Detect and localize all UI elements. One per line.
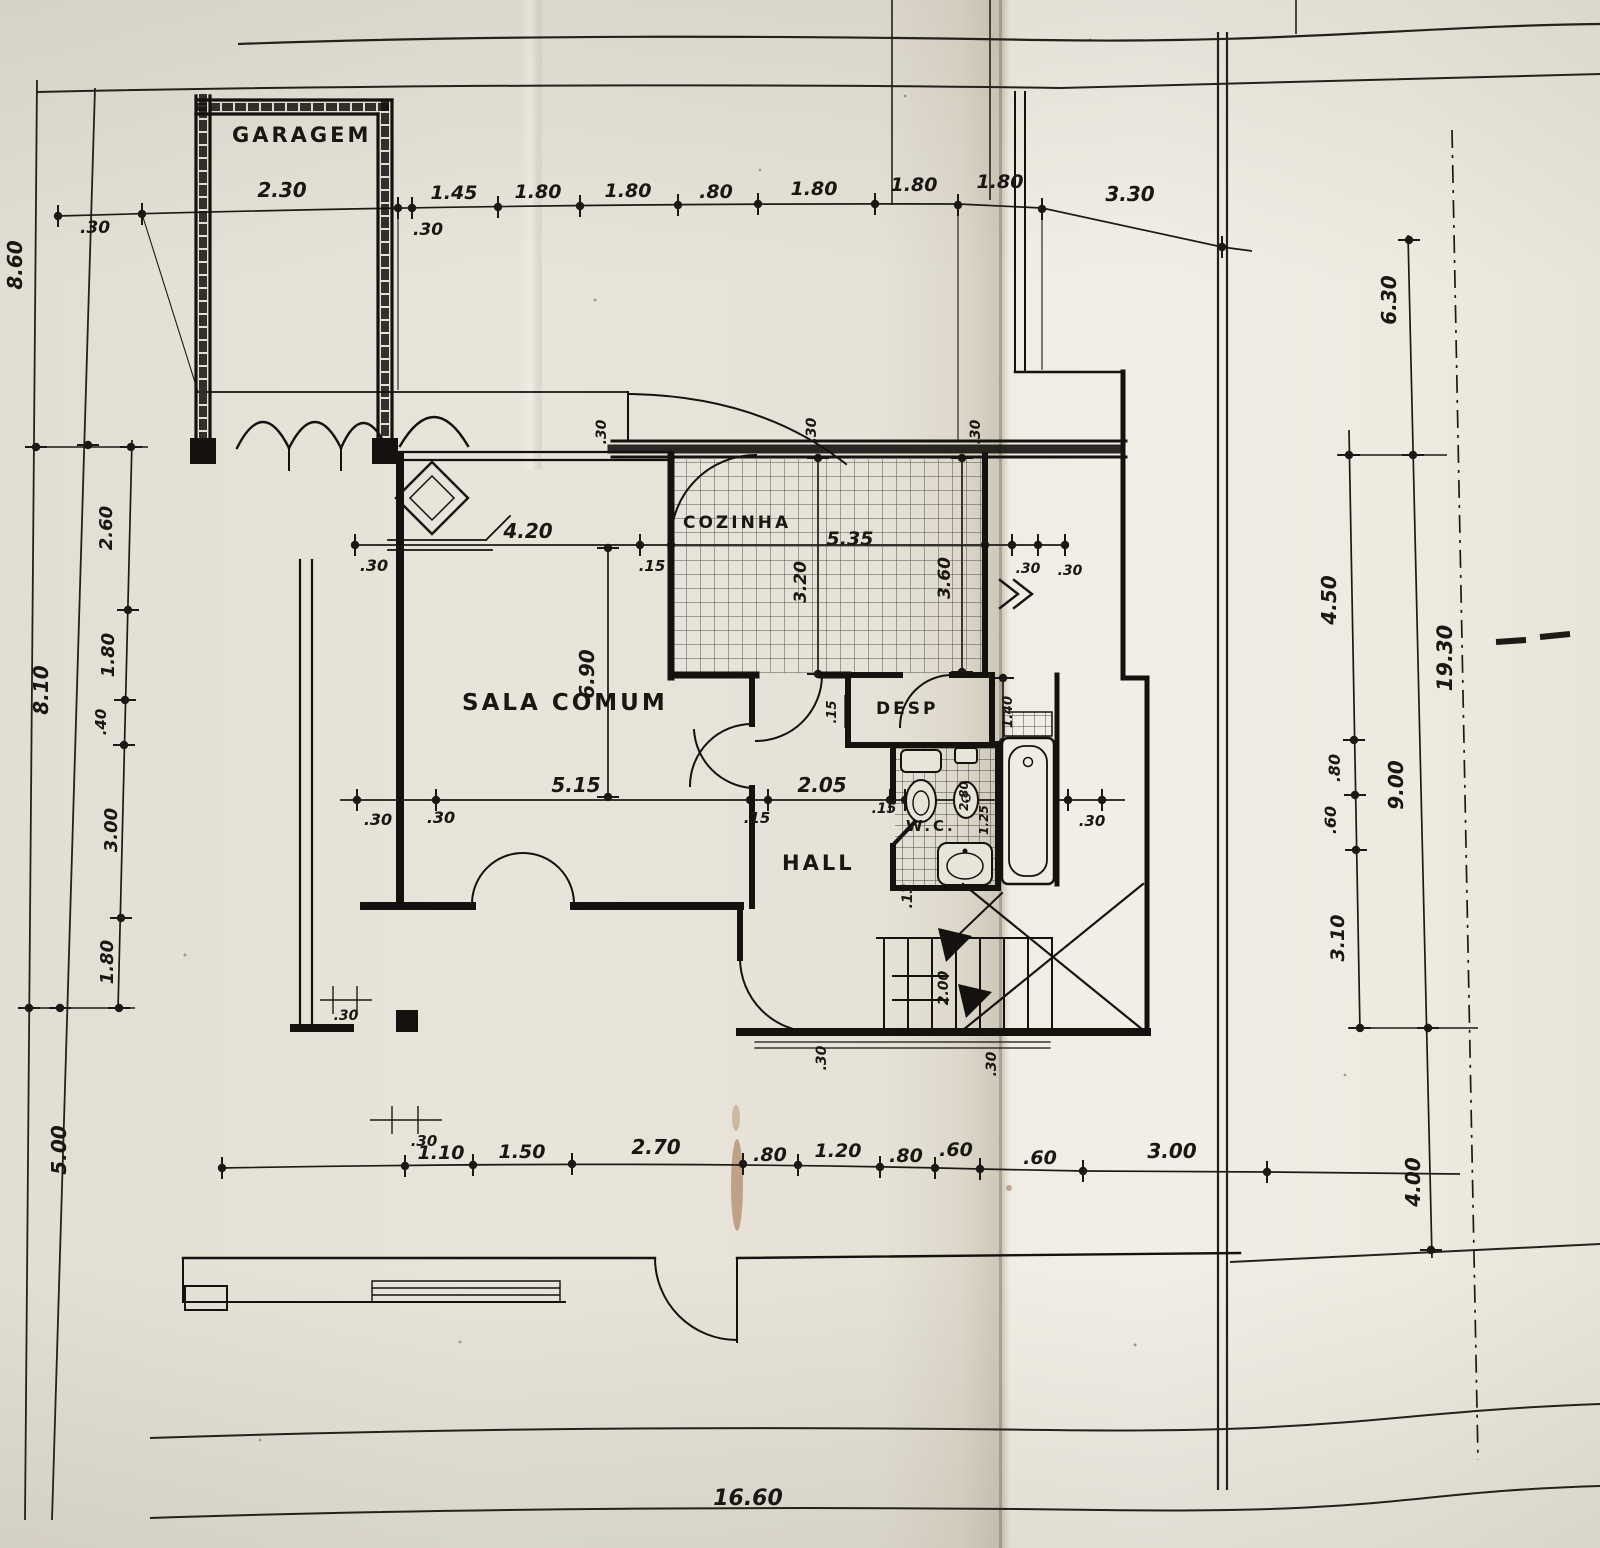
- dim-top-1: 2.30: [257, 178, 306, 202]
- dim-left-s1: 2.60: [96, 506, 117, 550]
- dim-bottom-tick-right: .30: [984, 1051, 1000, 1076]
- dim-wc-depth: 2.80: [957, 781, 971, 811]
- dim-bottom-7: .60: [939, 1139, 973, 1161]
- dim-bottom-3: 2.70: [631, 1135, 680, 1159]
- dim-cozinha-depth-right: 3.60: [935, 557, 955, 599]
- dim-left-s3: .40: [92, 709, 110, 736]
- room-label-hall: HALL: [782, 851, 855, 875]
- dim-top-8: 1.80: [891, 174, 938, 196]
- dim-cozinha-right-tick-2: .30: [1058, 563, 1083, 579]
- dim-top-4: 1.80: [515, 181, 562, 203]
- bidet-back-icon: [955, 748, 977, 763]
- dim-top-3: 1.45: [431, 182, 478, 204]
- dim-cozinha-right-tick-1: .30: [1016, 561, 1041, 577]
- dim-desp-left-tick: .15: [825, 700, 840, 723]
- dim-right-r5: 9.00: [1384, 760, 1408, 809]
- dim-bottom-1: 1.10: [418, 1142, 465, 1164]
- dim-bottom-8: .60: [1023, 1147, 1057, 1169]
- dim-cozinha-width: 5.35: [827, 528, 874, 550]
- dim-bottom-total: 16.60: [713, 1486, 783, 1511]
- dim-top-0: .30: [80, 218, 110, 238]
- dim-bottom-5: 1.20: [815, 1140, 862, 1162]
- rust-stain: [731, 1139, 743, 1231]
- dim-sala-corner-tick: .30: [334, 1008, 359, 1024]
- room-label-wc: W.C.: [906, 817, 956, 835]
- dim-sala-width: 4.20: [502, 519, 552, 543]
- dim-left-s5: 1.80: [97, 940, 118, 984]
- dim-sala-lower-width: 5.15: [551, 773, 600, 797]
- dim-left-bottom: 5.00: [47, 1125, 71, 1174]
- dim-stair-width: 2.00: [936, 970, 952, 1005]
- dim-sala-wall-left: .30: [360, 556, 388, 575]
- scanned-floor-plan: GARAGEM SALA COMUM COZINHA DESP W.C. HAL…: [0, 0, 1600, 1548]
- dim-top-5: 1.80: [605, 180, 652, 202]
- dim-top-wall-tick-3: .30: [968, 419, 984, 444]
- dim-right-r1: 6.30: [1377, 275, 1401, 324]
- room-label-sala-comum: SALA COMUM: [462, 690, 668, 716]
- dim-left-s4: 3.00: [101, 808, 122, 852]
- dim-left-s2: 1.80: [98, 633, 119, 677]
- dim-top-10: 3.30: [1105, 182, 1154, 206]
- dim-sala-depth: 6.90: [575, 649, 599, 698]
- dim-bottom-4: .80: [753, 1144, 787, 1166]
- dim-top-wall-tick-2: .30: [804, 417, 820, 442]
- dim-right-r3: .80: [1325, 754, 1344, 782]
- dim-top-6: .80: [699, 181, 733, 203]
- dim-right-r4: .60: [1321, 806, 1340, 834]
- dim-left-outer2: 8.10: [29, 665, 53, 714]
- dim-sala-wall-right: .15: [639, 557, 666, 575]
- dim-lower-tick-2: .30: [427, 808, 455, 827]
- dim-stair-tick: .13: [900, 884, 916, 909]
- dim-bottom-2: 1.50: [499, 1141, 546, 1163]
- dim-bottom-9: 3.00: [1147, 1139, 1196, 1163]
- floor-plan-drawing: GARAGEM SALA COMUM COZINHA DESP W.C. HAL…: [0, 0, 1600, 1548]
- dim-right-total: 19.30: [1433, 625, 1457, 691]
- dim-wc-width: 1.25: [977, 805, 991, 835]
- dim-right-r2: 4.50: [1317, 575, 1341, 625]
- dim-bottom-6: .80: [889, 1145, 923, 1167]
- room-label-desp: DESP: [876, 699, 938, 719]
- dim-desp-depth: 1.40: [1001, 696, 1016, 728]
- dim-hall-width: 2.05: [797, 773, 846, 797]
- toilet-tank-icon: [901, 750, 941, 772]
- dim-left-outer: 8.60: [3, 240, 27, 289]
- dim-right-r6: 3.10: [1327, 915, 1349, 962]
- dim-hall-left-tick: .15: [744, 809, 771, 827]
- dim-right-r7: 4.00: [1401, 1157, 1425, 1207]
- dim-hall-right-tick: .15: [872, 801, 897, 817]
- dim-lower-tick-1: .30: [364, 810, 392, 829]
- dim-top-2: .30: [413, 220, 443, 240]
- dim-top-9: 1.80: [977, 171, 1024, 193]
- dim-top-7: 1.80: [791, 178, 838, 200]
- dim-bottom-tick-left: .30: [814, 1045, 830, 1070]
- pillar: [396, 1010, 418, 1032]
- dim-tub-right-tick: .30: [1079, 812, 1106, 830]
- dim-cozinha-depth-left: 3.20: [791, 561, 811, 603]
- room-label-cozinha: COZINHA: [683, 513, 791, 533]
- room-label-garagem: GARAGEM: [232, 123, 371, 147]
- dim-top-wall-tick-1: .30: [594, 419, 610, 444]
